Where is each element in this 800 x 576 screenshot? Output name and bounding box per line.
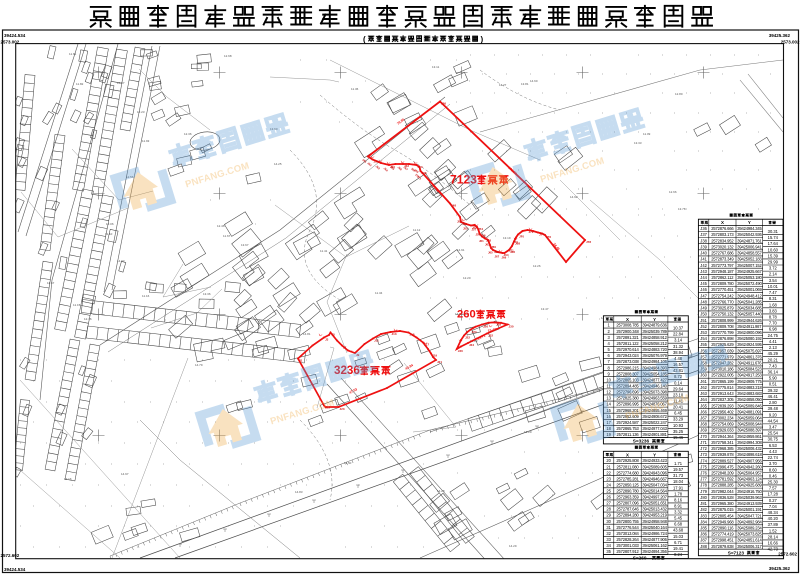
svg-text:J42: J42 — [700, 263, 707, 268]
svg-text:2572.602: 2572.602 — [778, 552, 797, 557]
svg-text:6.68: 6.68 — [674, 522, 683, 527]
svg-text:39424942.260: 39424942.260 — [737, 464, 762, 469]
svg-text:J57: J57 — [472, 228, 477, 232]
svg-text:J66: J66 — [700, 409, 707, 414]
svg-text:39424883.218: 39424883.218 — [737, 385, 762, 390]
svg-text:39425001.191: 39425001.191 — [737, 507, 762, 512]
svg-text:13.33: 13.33 — [634, 141, 642, 145]
svg-text:12.06: 12.06 — [106, 222, 114, 226]
svg-text:39424881.091: 39424881.091 — [737, 409, 762, 414]
svg-text:24.75: 24.75 — [768, 333, 779, 338]
svg-text:25.30: 25.30 — [768, 479, 779, 484]
svg-text:2572929.033: 2572929.033 — [711, 428, 734, 433]
svg-text:2572913.643: 2572913.643 — [711, 391, 734, 396]
svg-text:2572803.173: 2572803.173 — [711, 232, 734, 237]
svg-text:J41: J41 — [700, 257, 707, 262]
svg-text:0.51: 0.51 — [769, 382, 778, 387]
svg-text:J46: J46 — [422, 171, 427, 175]
svg-text:39425006.941: 39425006.941 — [737, 244, 762, 249]
svg-text:28: 28 — [606, 507, 611, 512]
svg-text:12.66: 12.66 — [669, 190, 677, 194]
svg-text:J61: J61 — [479, 239, 484, 243]
svg-text:2572850.125: 2572850.125 — [616, 482, 639, 487]
svg-text:46.41: 46.41 — [768, 394, 779, 399]
svg-text:39424953.219: 39424953.219 — [642, 513, 667, 518]
svg-text:2572862.112: 2572862.112 — [711, 275, 734, 280]
svg-text:2572808.999: 2572808.999 — [711, 318, 734, 323]
svg-text:J46: J46 — [700, 287, 707, 292]
svg-text:39424911.676: 39424911.676 — [737, 361, 762, 366]
svg-text:9.20: 9.20 — [769, 412, 778, 417]
svg-text:17.91: 17.91 — [673, 485, 684, 490]
svg-text:J1: J1 — [299, 359, 303, 363]
svg-text:J60: J60 — [491, 245, 496, 249]
svg-text:2573008.785: 2573008.785 — [616, 323, 639, 328]
svg-text:39424858.557: 39424858.557 — [737, 251, 762, 256]
svg-text:): ) — [481, 35, 484, 44]
svg-text:39425008.432: 39425008.432 — [737, 446, 762, 451]
svg-text:37.89: 37.89 — [768, 522, 779, 527]
svg-text:13.19: 13.19 — [503, 236, 511, 240]
svg-text:39425051.651: 39425051.651 — [642, 501, 667, 506]
svg-text:2573002.234: 2573002.234 — [711, 416, 734, 421]
svg-text:2572811.136: 2572811.136 — [617, 432, 640, 437]
svg-text:11.27: 11.27 — [499, 83, 507, 87]
svg-text:2572770.799: 2572770.799 — [711, 330, 734, 335]
svg-text:23: 23 — [606, 476, 611, 481]
svg-text:12.36: 12.36 — [184, 132, 192, 136]
svg-text:8.91: 8.91 — [674, 503, 683, 508]
svg-text:2572774.680: 2572774.680 — [616, 470, 639, 475]
svg-text:5.45: 5.45 — [674, 516, 683, 521]
svg-text:J63: J63 — [700, 391, 707, 396]
svg-text:8.78: 8.78 — [769, 315, 778, 320]
svg-text:30.31: 30.31 — [768, 229, 779, 234]
svg-text:J23: J23 — [340, 407, 345, 411]
svg-text:J65: J65 — [700, 403, 707, 408]
svg-text:2572811.122: 2572811.122 — [617, 341, 640, 346]
svg-text:7.70: 7.70 — [769, 321, 778, 326]
svg-text:39424994.308: 39424994.308 — [737, 440, 762, 445]
svg-text:39424963.124: 39424963.124 — [737, 477, 762, 482]
svg-text:2572774.419: 2572774.419 — [711, 532, 734, 537]
svg-text:13.47: 13.47 — [541, 307, 549, 311]
svg-text:2572770.451: 2572770.451 — [711, 287, 734, 292]
svg-text:2572890.780: 2572890.780 — [616, 489, 639, 494]
svg-text:2572809.708: 2572809.708 — [711, 324, 734, 329]
svg-text:J36: J36 — [700, 226, 707, 231]
svg-text:13.81: 13.81 — [521, 82, 529, 86]
svg-text:30.75: 30.75 — [768, 437, 779, 442]
svg-text:7.57: 7.57 — [769, 486, 778, 491]
svg-text:6.45: 6.45 — [674, 411, 683, 416]
svg-text:13.11: 13.11 — [432, 65, 440, 69]
svg-text:39425089.234: 39425089.234 — [737, 525, 762, 530]
svg-text:39424916.750: 39424916.750 — [737, 489, 762, 494]
svg-text:39425076.979: 39425076.979 — [642, 353, 667, 358]
svg-text:11.82: 11.82 — [76, 82, 84, 86]
svg-text:14.79: 14.79 — [195, 363, 203, 367]
svg-text:2572888.285: 2572888.285 — [711, 483, 734, 488]
svg-text:2572922.005: 2572922.005 — [711, 373, 734, 378]
svg-text:J77: J77 — [700, 477, 707, 482]
svg-text:2.14: 2.14 — [769, 272, 778, 277]
svg-text:39424858.050: 39424858.050 — [737, 397, 762, 402]
svg-text:2572807.912: 2572807.912 — [616, 549, 639, 554]
svg-text:J72: J72 — [700, 446, 707, 451]
svg-text:11.12: 11.12 — [413, 228, 421, 232]
svg-text:2573.002: 2573.002 — [1, 39, 20, 44]
svg-text:11.67: 11.67 — [223, 234, 231, 238]
svg-text:X: X — [626, 317, 629, 322]
svg-text:0.27: 0.27 — [769, 498, 778, 503]
svg-text:39424879.636: 39424879.636 — [642, 323, 667, 328]
svg-text:39424.534: 39424.534 — [4, 33, 26, 38]
svg-text:7.04: 7.04 — [769, 504, 778, 509]
svg-text:2572963.359: 2572963.359 — [616, 495, 639, 500]
svg-text:12.46: 12.46 — [217, 224, 225, 228]
svg-text:39424861.376: 39424861.376 — [737, 354, 762, 359]
svg-text:J44: J44 — [418, 165, 423, 169]
svg-text:11.50: 11.50 — [344, 461, 352, 465]
svg-text:J73: J73 — [513, 240, 518, 244]
svg-text:13.78: 13.78 — [678, 207, 686, 211]
svg-text:15.03: 15.03 — [673, 534, 684, 539]
svg-text:16.66: 16.66 — [768, 541, 779, 546]
svg-text:J47: J47 — [700, 293, 707, 298]
svg-text:39424946.667: 39424946.667 — [642, 476, 667, 481]
svg-text:14.60: 14.60 — [530, 79, 538, 83]
svg-text:J76: J76 — [546, 235, 551, 239]
svg-text:39424986.724: 39424986.724 — [642, 531, 667, 536]
svg-text:2572876.898: 2572876.898 — [711, 336, 734, 341]
svg-text:3.54: 3.54 — [769, 278, 778, 283]
svg-text:2572775.814: 2572775.814 — [711, 385, 734, 390]
svg-text:J71: J71 — [509, 249, 514, 253]
svg-text:39424907.956: 39424907.956 — [737, 458, 762, 463]
svg-text:J59: J59 — [476, 233, 481, 237]
svg-text:1.78: 1.78 — [674, 491, 683, 496]
svg-text:2573001.033: 2573001.033 — [616, 543, 639, 548]
svg-text:J7: J7 — [343, 346, 347, 350]
svg-text:39424959.861: 39424959.861 — [737, 434, 762, 439]
svg-text:31.32: 31.32 — [673, 344, 684, 349]
svg-text:39425061.162: 39425061.162 — [642, 543, 667, 548]
svg-text:J62: J62 — [494, 250, 499, 254]
svg-text:40.20: 40.20 — [768, 516, 779, 521]
svg-text:36.14: 36.14 — [768, 369, 779, 374]
svg-text:2572773.797: 2572773.797 — [711, 263, 734, 268]
svg-text:39425073.825: 39425073.825 — [737, 532, 762, 537]
svg-text:39424894.356: 39424894.356 — [642, 549, 667, 554]
svg-text:12.68: 12.68 — [224, 54, 232, 58]
svg-text:2572879.838: 2572879.838 — [711, 544, 734, 549]
svg-text:2572944.364: 2572944.364 — [711, 434, 734, 439]
svg-text:J11: J11 — [374, 339, 379, 343]
svg-text:39424.534: 39424.534 — [4, 567, 26, 572]
svg-text:Y: Y — [653, 452, 656, 457]
svg-text:J71: J71 — [700, 440, 707, 445]
svg-text:2572767.686: 2572767.686 — [711, 251, 734, 256]
svg-text:39425089.846: 39425089.846 — [737, 403, 762, 408]
svg-text:2572865.199: 2572865.199 — [711, 379, 734, 384]
svg-text:J53: J53 — [457, 220, 462, 224]
svg-text:2572800.755: 2572800.755 — [616, 519, 639, 524]
svg-text:8.16: 8.16 — [674, 497, 683, 502]
svg-text:15.39: 15.39 — [768, 253, 779, 258]
svg-text:12.20: 12.20 — [463, 276, 471, 280]
svg-text:2572949.968: 2572949.968 — [711, 519, 734, 524]
svg-text:2572894.280: 2572894.280 — [616, 513, 639, 518]
svg-text:J78: J78 — [586, 240, 591, 244]
svg-text:13.36: 13.36 — [203, 292, 211, 296]
svg-text:6.53: 6.53 — [769, 443, 778, 448]
svg-text:2572939.878: 2572939.878 — [711, 452, 734, 457]
svg-text:8.31: 8.31 — [769, 296, 778, 301]
svg-text:22.74: 22.74 — [768, 455, 779, 460]
svg-text:3.83: 3.83 — [769, 308, 778, 313]
svg-text:J38: J38 — [700, 238, 707, 243]
svg-text:2572956.402: 2572956.402 — [711, 409, 734, 414]
svg-text:39425.362: 39425.362 — [769, 566, 791, 571]
svg-text:J72: J72 — [529, 230, 534, 234]
svg-text:J80: J80 — [700, 495, 707, 500]
svg-text:12.16: 12.16 — [64, 477, 72, 481]
svg-text:2572805.454: 2572805.454 — [711, 513, 734, 518]
svg-text:11.61: 11.61 — [69, 52, 77, 56]
svg-text:J51: J51 — [700, 318, 707, 323]
svg-text:39425.362: 39425.362 — [769, 33, 791, 38]
svg-text:34: 34 — [606, 543, 611, 548]
svg-text:J50: J50 — [462, 222, 467, 226]
svg-text:2572876.666: 2572876.666 — [711, 226, 734, 231]
svg-text:2573025.879: 2573025.879 — [711, 306, 734, 311]
svg-text:39424917.253: 39424917.253 — [737, 373, 762, 378]
svg-text:J67: J67 — [495, 255, 500, 259]
svg-text:J30: J30 — [509, 325, 514, 329]
svg-text:2572839.293: 2572839.293 — [711, 403, 734, 408]
svg-text:J22: J22 — [465, 336, 470, 340]
svg-text:2572807.096: 2572807.096 — [616, 501, 639, 506]
svg-text:39424997.207: 39424997.207 — [642, 495, 667, 500]
svg-text:(: ( — [363, 35, 366, 44]
svg-text:39424883.683: 39424883.683 — [737, 391, 762, 396]
svg-text:2572965.380: 2572965.380 — [711, 501, 734, 506]
svg-text:39425022.247: 39425022.247 — [642, 420, 667, 425]
svg-text:14.03: 14.03 — [117, 259, 125, 263]
svg-text:J78: J78 — [700, 483, 707, 488]
svg-text:J87: J87 — [700, 538, 707, 543]
svg-text:32: 32 — [606, 531, 611, 536]
svg-text:11.15: 11.15 — [73, 303, 81, 307]
svg-text:J64: J64 — [700, 397, 707, 402]
svg-text:39424925.667: 39424925.667 — [737, 269, 762, 274]
svg-text:J53: J53 — [700, 330, 707, 335]
svg-text:2572968.385: 2572968.385 — [711, 446, 734, 451]
svg-text:J67: J67 — [700, 416, 707, 421]
svg-text:2572873.349: 2572873.349 — [711, 257, 734, 262]
svg-text:7.47: 7.47 — [769, 290, 778, 295]
svg-text:J88: J88 — [700, 544, 707, 549]
svg-text:14.29: 14.29 — [509, 544, 517, 548]
svg-text:18.04: 18.04 — [673, 479, 684, 484]
svg-text:2572811.080: 2572811.080 — [617, 464, 640, 469]
svg-text:39.32: 39.32 — [768, 388, 779, 393]
svg-text:2572750.132: 2572750.132 — [711, 312, 734, 317]
svg-text:S=7123: S=7123 — [728, 550, 745, 555]
svg-text:39425042.936: 39425042.936 — [737, 232, 762, 237]
svg-text:39425072.490: 39425072.490 — [737, 281, 762, 286]
svg-text:39.48: 39.48 — [768, 406, 779, 411]
svg-text:14.83: 14.83 — [295, 490, 303, 494]
svg-text:0.46: 0.46 — [769, 473, 778, 478]
svg-text:J60: J60 — [700, 373, 707, 378]
svg-text:35.25: 35.25 — [673, 429, 684, 434]
svg-text:J62: J62 — [700, 385, 707, 390]
svg-text:11.93: 11.93 — [142, 139, 150, 143]
svg-text:28.14: 28.14 — [768, 534, 779, 539]
svg-text:2572925.808: 2572925.808 — [616, 458, 639, 463]
svg-text:2572787.646: 2572787.646 — [616, 507, 639, 512]
svg-text:39424943.096: 39424943.096 — [642, 470, 667, 475]
svg-text:J68: J68 — [700, 422, 707, 427]
svg-text:39424984.345: 39424984.345 — [737, 226, 762, 231]
svg-text:2572875.015: 2572875.015 — [711, 507, 734, 512]
svg-text:39424909.775: 39424909.775 — [737, 379, 762, 384]
svg-text:2572865.753: 2572865.753 — [616, 426, 639, 431]
svg-text:J73: J73 — [700, 452, 707, 457]
svg-text:J61: J61 — [700, 379, 707, 384]
svg-text:J36: J36 — [441, 102, 446, 106]
svg-text:2572948.187: 2572948.187 — [711, 269, 734, 274]
svg-text:J43: J43 — [700, 269, 707, 274]
svg-text:39424901.881: 39424901.881 — [642, 432, 667, 437]
svg-text:39425039.789: 39425039.789 — [642, 329, 667, 334]
svg-text:15.74: 15.74 — [768, 235, 779, 240]
svg-text:29.64: 29.64 — [673, 386, 684, 391]
svg-text:J50: J50 — [700, 312, 707, 317]
svg-text:39424913.939: 39424913.939 — [737, 501, 762, 506]
svg-text:Y: Y — [653, 317, 656, 322]
svg-text:39425084.523: 39425084.523 — [737, 367, 762, 372]
svg-text:39425001.069: 39425001.069 — [737, 287, 762, 292]
svg-text:10.93: 10.93 — [673, 423, 684, 428]
svg-text:39425053.180: 39425053.180 — [737, 275, 762, 280]
svg-text:11.10: 11.10 — [105, 232, 113, 236]
svg-text:45.29: 45.29 — [768, 351, 779, 356]
svg-text:39425014.564: 39425014.564 — [642, 489, 667, 494]
svg-text:11.67: 11.67 — [47, 281, 55, 285]
svg-text:14.25: 14.25 — [274, 162, 282, 166]
svg-text:J55: J55 — [463, 227, 468, 231]
svg-text:21: 21 — [606, 464, 611, 469]
svg-text:J75: J75 — [700, 464, 707, 469]
svg-text:2572900.348: 2572900.348 — [616, 329, 639, 334]
svg-text:8.60: 8.60 — [769, 467, 778, 472]
svg-text:S=3236: S=3236 — [633, 439, 650, 444]
svg-text:17.28: 17.28 — [768, 492, 779, 497]
svg-text:22.84: 22.84 — [673, 332, 684, 337]
svg-text:J74: J74 — [700, 458, 707, 463]
svg-text:J13: J13 — [392, 332, 397, 336]
svg-text:2572836.528: 2572836.528 — [711, 495, 734, 500]
svg-text:J15: J15 — [410, 333, 415, 337]
svg-text:2572834.952: 2572834.952 — [711, 238, 734, 243]
svg-text:J76: J76 — [700, 471, 707, 476]
svg-text:J79: J79 — [700, 489, 707, 494]
svg-text:11.41: 11.41 — [320, 249, 328, 253]
svg-text:11.36: 11.36 — [351, 87, 359, 91]
svg-text:39424883.720: 39424883.720 — [642, 347, 667, 352]
svg-text:39424851.614: 39424851.614 — [737, 538, 762, 543]
svg-text:10.60: 10.60 — [768, 247, 779, 252]
svg-text:2573.002: 2573.002 — [781, 39, 800, 44]
svg-text:39425039.963: 39425039.963 — [737, 495, 762, 500]
svg-text:2572837.305: 2572837.305 — [711, 397, 734, 402]
svg-text:J3: J3 — [325, 338, 329, 342]
svg-text:J52: J52 — [700, 324, 707, 329]
svg-text:39425006.317: 39425006.317 — [737, 544, 762, 549]
svg-text:2572986.215: 2572986.215 — [616, 365, 639, 370]
svg-text:39425013.432: 39425013.432 — [642, 507, 667, 512]
svg-text:Y: Y — [748, 220, 751, 225]
svg-text:31: 31 — [606, 525, 611, 530]
svg-text:31.73: 31.73 — [673, 473, 684, 478]
svg-text:39425058.212: 39425058.212 — [642, 341, 667, 346]
svg-text:7.43: 7.43 — [769, 363, 778, 368]
svg-text:J24: J24 — [472, 330, 477, 334]
svg-text:6.71: 6.71 — [674, 540, 683, 545]
svg-text:3.14: 3.14 — [674, 338, 683, 343]
svg-text:25: 25 — [606, 489, 611, 494]
svg-text:J44: J44 — [700, 275, 707, 280]
svg-text:14.07: 14.07 — [117, 81, 125, 85]
svg-text:2.13: 2.13 — [769, 345, 778, 350]
svg-text:J84: J84 — [700, 519, 707, 524]
svg-text:29: 29 — [606, 513, 611, 518]
svg-text:39425089.605: 39425089.605 — [642, 464, 667, 469]
svg-text:J54: J54 — [478, 227, 483, 231]
svg-text:39424933.423: 39424933.423 — [642, 458, 667, 463]
svg-text:J39: J39 — [700, 244, 707, 249]
svg-text:30: 30 — [606, 519, 611, 524]
svg-text:39424911.987: 39424911.987 — [737, 324, 762, 329]
svg-text:39425057.440: 39425057.440 — [737, 312, 762, 317]
svg-text:J69: J69 — [502, 256, 507, 260]
svg-text:39425059.064: 39425059.064 — [737, 416, 762, 421]
svg-text:J34: J34 — [469, 343, 474, 347]
svg-text:2572828.264: 2572828.264 — [616, 537, 639, 542]
svg-text:25.54: 25.54 — [768, 431, 779, 436]
svg-text:14.97: 14.97 — [121, 472, 129, 476]
svg-text:J28: J28 — [496, 323, 501, 327]
svg-text:J49: J49 — [700, 306, 707, 311]
svg-text:260: 260 — [457, 309, 476, 321]
svg-text:J55: J55 — [700, 342, 707, 347]
svg-text:J48: J48 — [700, 299, 707, 304]
svg-text:39424944.626: 39424944.626 — [737, 318, 762, 323]
svg-text:2572890.116: 2572890.116 — [711, 525, 734, 530]
svg-text:39425047.034: 39425047.034 — [642, 482, 667, 487]
svg-text:2572970.614: 2572970.614 — [616, 347, 639, 352]
svg-text:J65: J65 — [488, 251, 493, 255]
svg-text:39424898.618: 39424898.618 — [737, 452, 762, 457]
svg-text:2572873.038: 2572873.038 — [616, 359, 639, 364]
svg-text:39424871.761: 39424871.761 — [737, 238, 762, 243]
svg-text:39425080.192: 39425080.192 — [737, 336, 762, 341]
svg-text:12.26: 12.26 — [533, 264, 541, 268]
svg-text:39425052.183: 39425052.183 — [737, 257, 762, 262]
